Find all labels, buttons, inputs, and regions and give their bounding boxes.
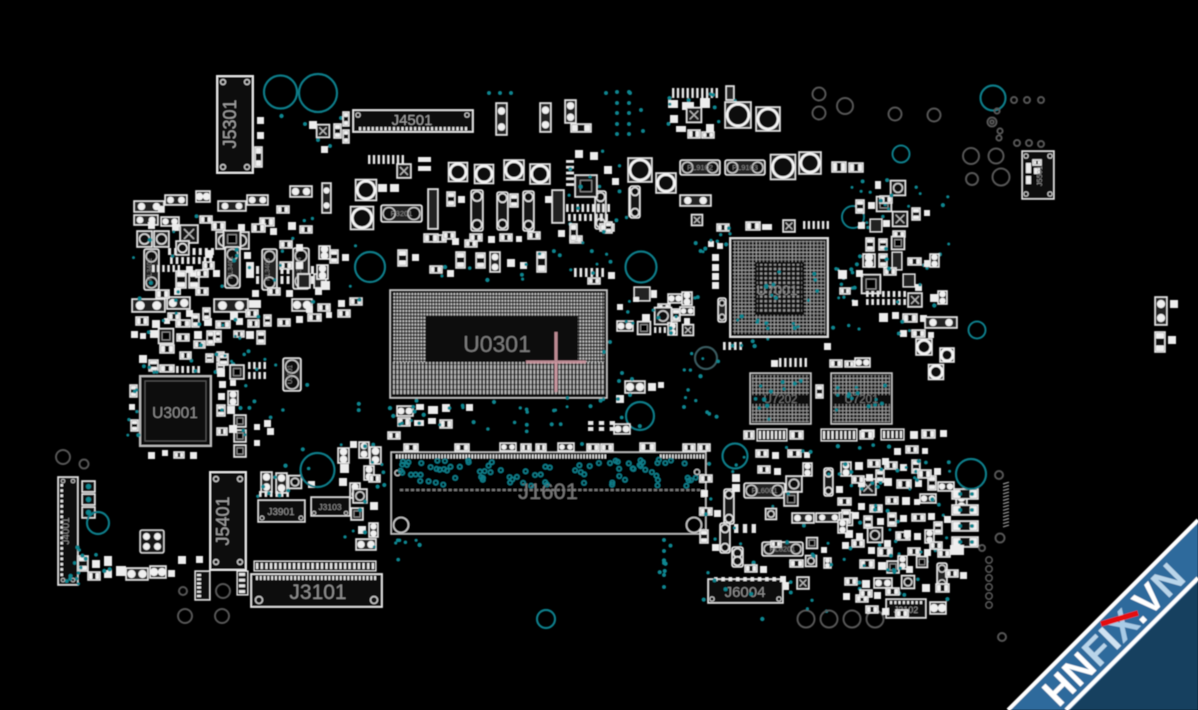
- svg-text:P3201: P3201: [391, 209, 413, 218]
- svg-text:J5501: J5501: [1035, 166, 1044, 186]
- svg-text:J6004: J6004: [725, 584, 766, 601]
- svg-text:J3101: J3101: [289, 581, 346, 604]
- svg-text:PL9103: PL9103: [732, 163, 758, 172]
- svg-text:U7001: U7001: [756, 282, 797, 298]
- svg-text:J5301: J5301: [220, 99, 240, 148]
- svg-text:U3001: U3001: [152, 405, 198, 422]
- svg-text:J4001: J4001: [61, 517, 72, 545]
- svg-text:PL6001: PL6001: [752, 486, 778, 495]
- svg-text:J4501: J4501: [392, 112, 433, 129]
- svg-text:PL3403: PL3403: [265, 258, 272, 281]
- svg-text:PL9102: PL9102: [687, 163, 713, 172]
- svg-text:U3901: U3901: [287, 365, 294, 385]
- svg-text:J5401: J5401: [213, 496, 233, 545]
- svg-text:J3901: J3901: [267, 507, 295, 518]
- svg-text:U0301: U0301: [463, 331, 531, 357]
- svg-text:J3103: J3103: [318, 502, 341, 512]
